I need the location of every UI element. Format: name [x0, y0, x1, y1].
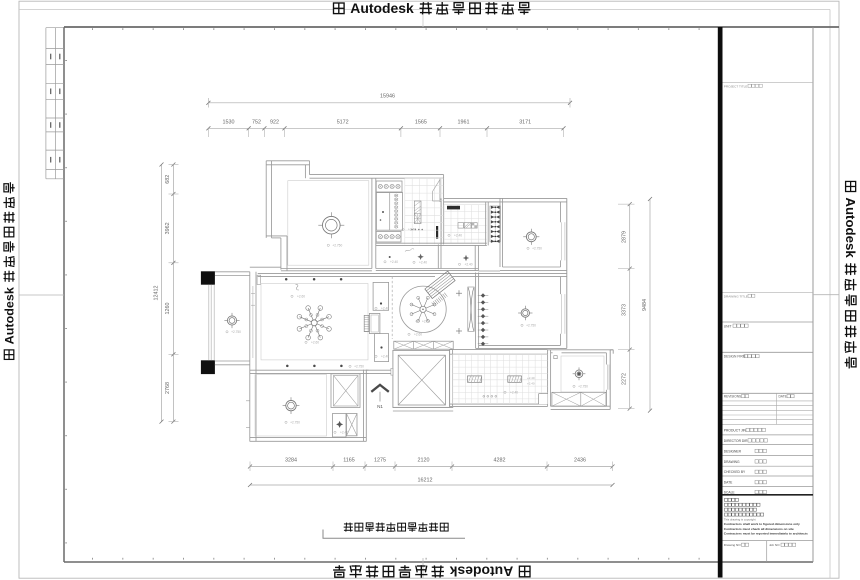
svg-text:3373: 3373 — [621, 304, 627, 316]
svg-text:+2.750: +2.750 — [231, 330, 241, 334]
svg-text:9484: 9484 — [642, 299, 648, 311]
svg-text:3171: 3171 — [519, 119, 531, 125]
svg-text:1275: 1275 — [374, 458, 386, 464]
svg-text:CHECKED BY: CHECKED BY — [724, 470, 746, 474]
svg-text:DIRECTOR DIR: DIRECTOR DIR — [724, 439, 748, 443]
svg-text:2436: 2436 — [574, 458, 586, 464]
svg-text:DESIGN FIRM: DESIGN FIRM — [724, 355, 746, 359]
svg-text:5172: 5172 — [337, 119, 349, 125]
svg-text:3962: 3962 — [165, 222, 171, 234]
svg-text:+2.40: +2.40 — [527, 376, 535, 380]
svg-text:752: 752 — [252, 119, 261, 125]
svg-text:+2.40: +2.40 — [340, 431, 348, 435]
svg-text:N1: N1 — [377, 404, 383, 409]
svg-text:DATE: DATE — [779, 395, 787, 399]
svg-text:2768: 2768 — [165, 382, 171, 394]
svg-text:+2.40: +2.40 — [381, 307, 389, 311]
svg-text:Contractors must check all dim: Contractors must check all dimensions on… — [724, 527, 794, 531]
svg-text:+2.60: +2.60 — [414, 333, 422, 337]
svg-text:+2.40: +2.40 — [464, 263, 472, 267]
svg-text:This drawing is copyright: This drawing is copyright — [724, 517, 756, 521]
svg-text:+2.750: +2.750 — [354, 365, 364, 369]
svg-text:1260: 1260 — [165, 303, 171, 315]
svg-text:Job NO: Job NO — [769, 543, 780, 547]
svg-text:12412: 12412 — [153, 286, 159, 301]
svg-text:3284: 3284 — [285, 458, 297, 464]
svg-text:16212: 16212 — [418, 478, 433, 484]
svg-text:4282: 4282 — [494, 458, 506, 464]
svg-text:1961: 1961 — [458, 119, 470, 125]
svg-text:+2.750: +2.750 — [290, 421, 300, 425]
svg-text:+2.750: +2.750 — [526, 324, 536, 328]
svg-text:+2.60: +2.60 — [297, 295, 305, 299]
svg-text:UNIT: UNIT — [724, 324, 732, 328]
svg-text:+2.750: +2.750 — [532, 247, 542, 251]
svg-text:PROJECT TITLE: PROJECT TITLE — [724, 84, 748, 88]
svg-text:DESIGNER: DESIGNER — [724, 449, 742, 453]
svg-text:+2.750: +2.750 — [332, 244, 342, 248]
svg-text:PRODUCT JIN: PRODUCT JIN — [724, 428, 747, 432]
svg-text:+2.40: +2.40 — [390, 260, 398, 264]
svg-text:2120: 2120 — [418, 458, 430, 464]
svg-text:+2.40: +2.40 — [419, 261, 427, 265]
svg-text:REVISIONS: REVISIONS — [724, 395, 741, 399]
svg-text:DRAWING: DRAWING — [724, 460, 740, 464]
svg-text:Contractors shall work to figu: Contractors shall work to figured dimens… — [724, 522, 800, 526]
svg-text:2879: 2879 — [621, 231, 627, 243]
svg-text:+2.40: +2.40 — [381, 355, 389, 359]
svg-text:1565: 1565 — [415, 119, 427, 125]
svg-text:+2.40: +2.40 — [527, 382, 535, 386]
svg-text:+2.750: +2.750 — [578, 385, 588, 389]
svg-text:+2.40: +2.40 — [408, 228, 416, 232]
svg-text:+2.40: +2.40 — [510, 391, 518, 395]
svg-text:2272: 2272 — [621, 373, 627, 385]
svg-text:Drawing NO: Drawing NO — [724, 543, 741, 547]
svg-text:Contractors must be reported i: Contractors must be reported immediately… — [724, 532, 808, 536]
svg-text:SCALE: SCALE — [724, 490, 736, 494]
svg-text:+2.60: +2.60 — [422, 320, 430, 324]
svg-text:1530: 1530 — [223, 119, 235, 125]
svg-text:+2.60: +2.60 — [311, 341, 319, 345]
svg-text:1165: 1165 — [343, 458, 355, 464]
svg-text:DATE: DATE — [724, 481, 733, 485]
svg-text:922: 922 — [270, 119, 279, 125]
svg-text:15946: 15946 — [380, 94, 395, 100]
svg-text:682: 682 — [165, 175, 171, 184]
svg-text:+2.40: +2.40 — [454, 234, 462, 238]
svg-text:DRAWING TITLE: DRAWING TITLE — [724, 294, 748, 298]
